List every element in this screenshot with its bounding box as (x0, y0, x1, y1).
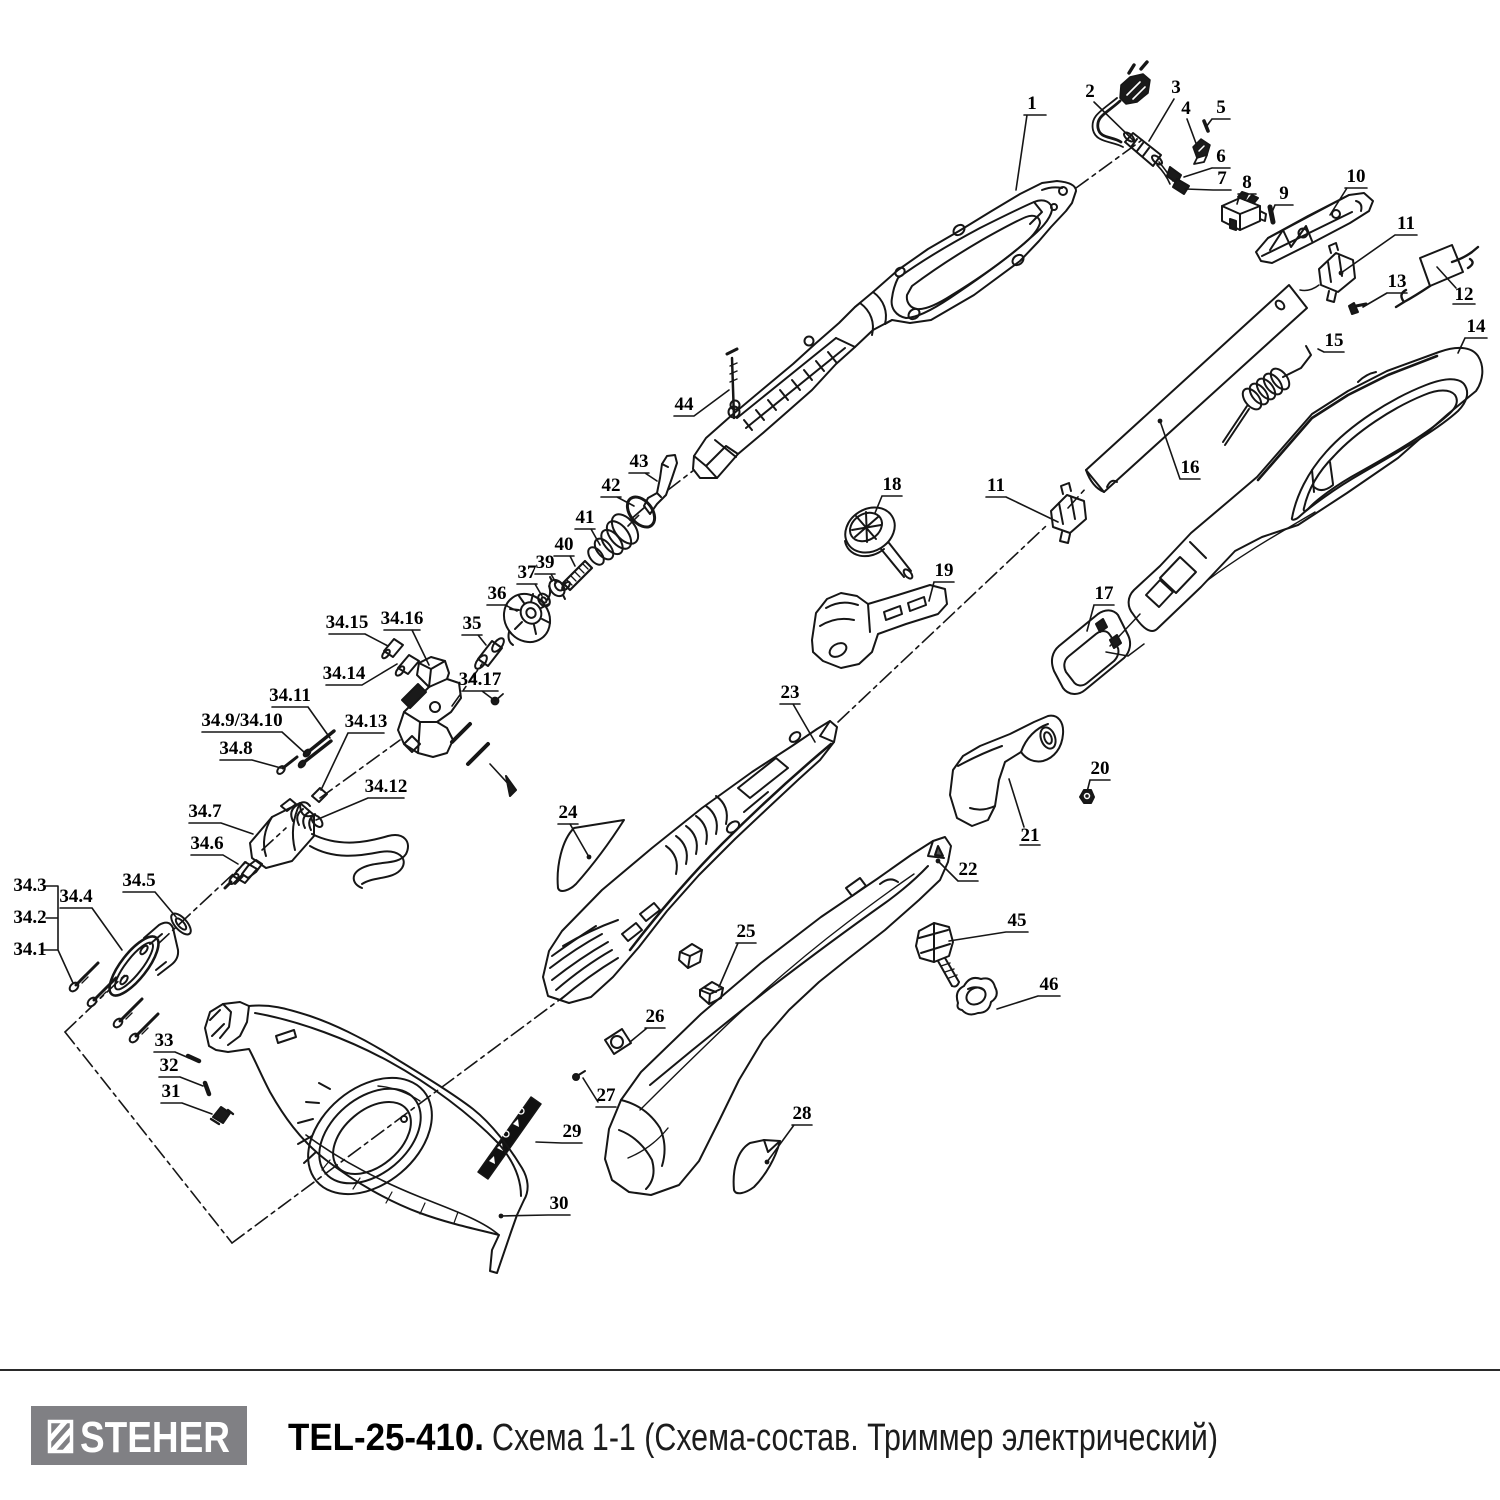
svg-text:17: 17 (1095, 583, 1115, 604)
svg-text:34.7: 34.7 (188, 801, 222, 822)
svg-text:16: 16 (1181, 457, 1200, 478)
svg-text:TEL-25-410.: TEL-25-410. (288, 1417, 484, 1459)
svg-text:30: 30 (550, 1193, 569, 1214)
svg-text:1: 1 (1027, 93, 1037, 114)
svg-text:19: 19 (935, 560, 954, 581)
svg-text:4: 4 (1181, 98, 1191, 119)
svg-text:34.1: 34.1 (13, 939, 46, 960)
svg-text:34.16: 34.16 (381, 608, 424, 629)
svg-text:45: 45 (1008, 910, 1027, 931)
svg-text:37: 37 (518, 562, 538, 583)
svg-text:12: 12 (1455, 284, 1474, 305)
svg-text:34.11: 34.11 (269, 685, 311, 706)
svg-text:26: 26 (646, 1006, 665, 1027)
svg-text:32: 32 (160, 1055, 179, 1076)
svg-text:13: 13 (1388, 271, 1407, 292)
svg-text:34.4: 34.4 (59, 886, 93, 907)
svg-text:9: 9 (1279, 183, 1289, 204)
svg-text:34.14: 34.14 (323, 663, 366, 684)
svg-text:34.6: 34.6 (190, 833, 223, 854)
svg-text:27: 27 (597, 1085, 617, 1106)
svg-text:10: 10 (1347, 166, 1366, 187)
svg-text:34.9/34.10: 34.9/34.10 (201, 710, 282, 731)
svg-text:29: 29 (563, 1121, 582, 1142)
svg-text:34.17: 34.17 (459, 669, 502, 690)
svg-text:11: 11 (987, 475, 1005, 496)
svg-text:46: 46 (1040, 974, 1059, 995)
svg-text:3: 3 (1171, 77, 1181, 98)
svg-text:40: 40 (555, 534, 574, 555)
svg-text:STEHER: STEHER (80, 1413, 230, 1462)
svg-text:34.12: 34.12 (365, 776, 408, 797)
svg-text:34.15: 34.15 (326, 612, 369, 633)
svg-text:5: 5 (1216, 97, 1226, 118)
svg-text:11: 11 (1397, 213, 1415, 234)
svg-text:21: 21 (1021, 825, 1040, 846)
svg-text:34.3: 34.3 (13, 875, 46, 896)
svg-text:23: 23 (781, 682, 800, 703)
svg-text:22: 22 (959, 859, 978, 880)
svg-text:31: 31 (162, 1081, 181, 1102)
svg-text:28: 28 (793, 1103, 812, 1124)
svg-text:35: 35 (463, 613, 482, 634)
svg-text:34.2: 34.2 (13, 907, 46, 928)
svg-text:39: 39 (536, 552, 555, 573)
svg-text:34.5: 34.5 (122, 870, 155, 891)
svg-text:36: 36 (488, 583, 507, 604)
svg-text:41: 41 (576, 507, 595, 528)
svg-text:42: 42 (602, 475, 621, 496)
svg-text:2: 2 (1085, 81, 1095, 102)
svg-text:34.8: 34.8 (219, 738, 252, 759)
svg-text:44: 44 (675, 394, 695, 415)
svg-text:14: 14 (1467, 316, 1487, 337)
svg-text:15: 15 (1325, 330, 1344, 351)
svg-text:33: 33 (155, 1030, 174, 1051)
svg-text:6: 6 (1216, 146, 1226, 167)
svg-text:8: 8 (1242, 172, 1252, 193)
svg-text:43: 43 (630, 451, 649, 472)
svg-text:7: 7 (1217, 168, 1227, 189)
svg-text:34.13: 34.13 (345, 711, 388, 732)
svg-text:18: 18 (883, 474, 902, 495)
svg-text:25: 25 (737, 921, 756, 942)
svg-text:24: 24 (559, 802, 579, 823)
svg-text:Схема 1-1 (Схема-состав. Тримм: Схема 1-1 (Схема-состав. Триммер электри… (492, 1417, 1218, 1459)
svg-text:20: 20 (1091, 758, 1110, 779)
